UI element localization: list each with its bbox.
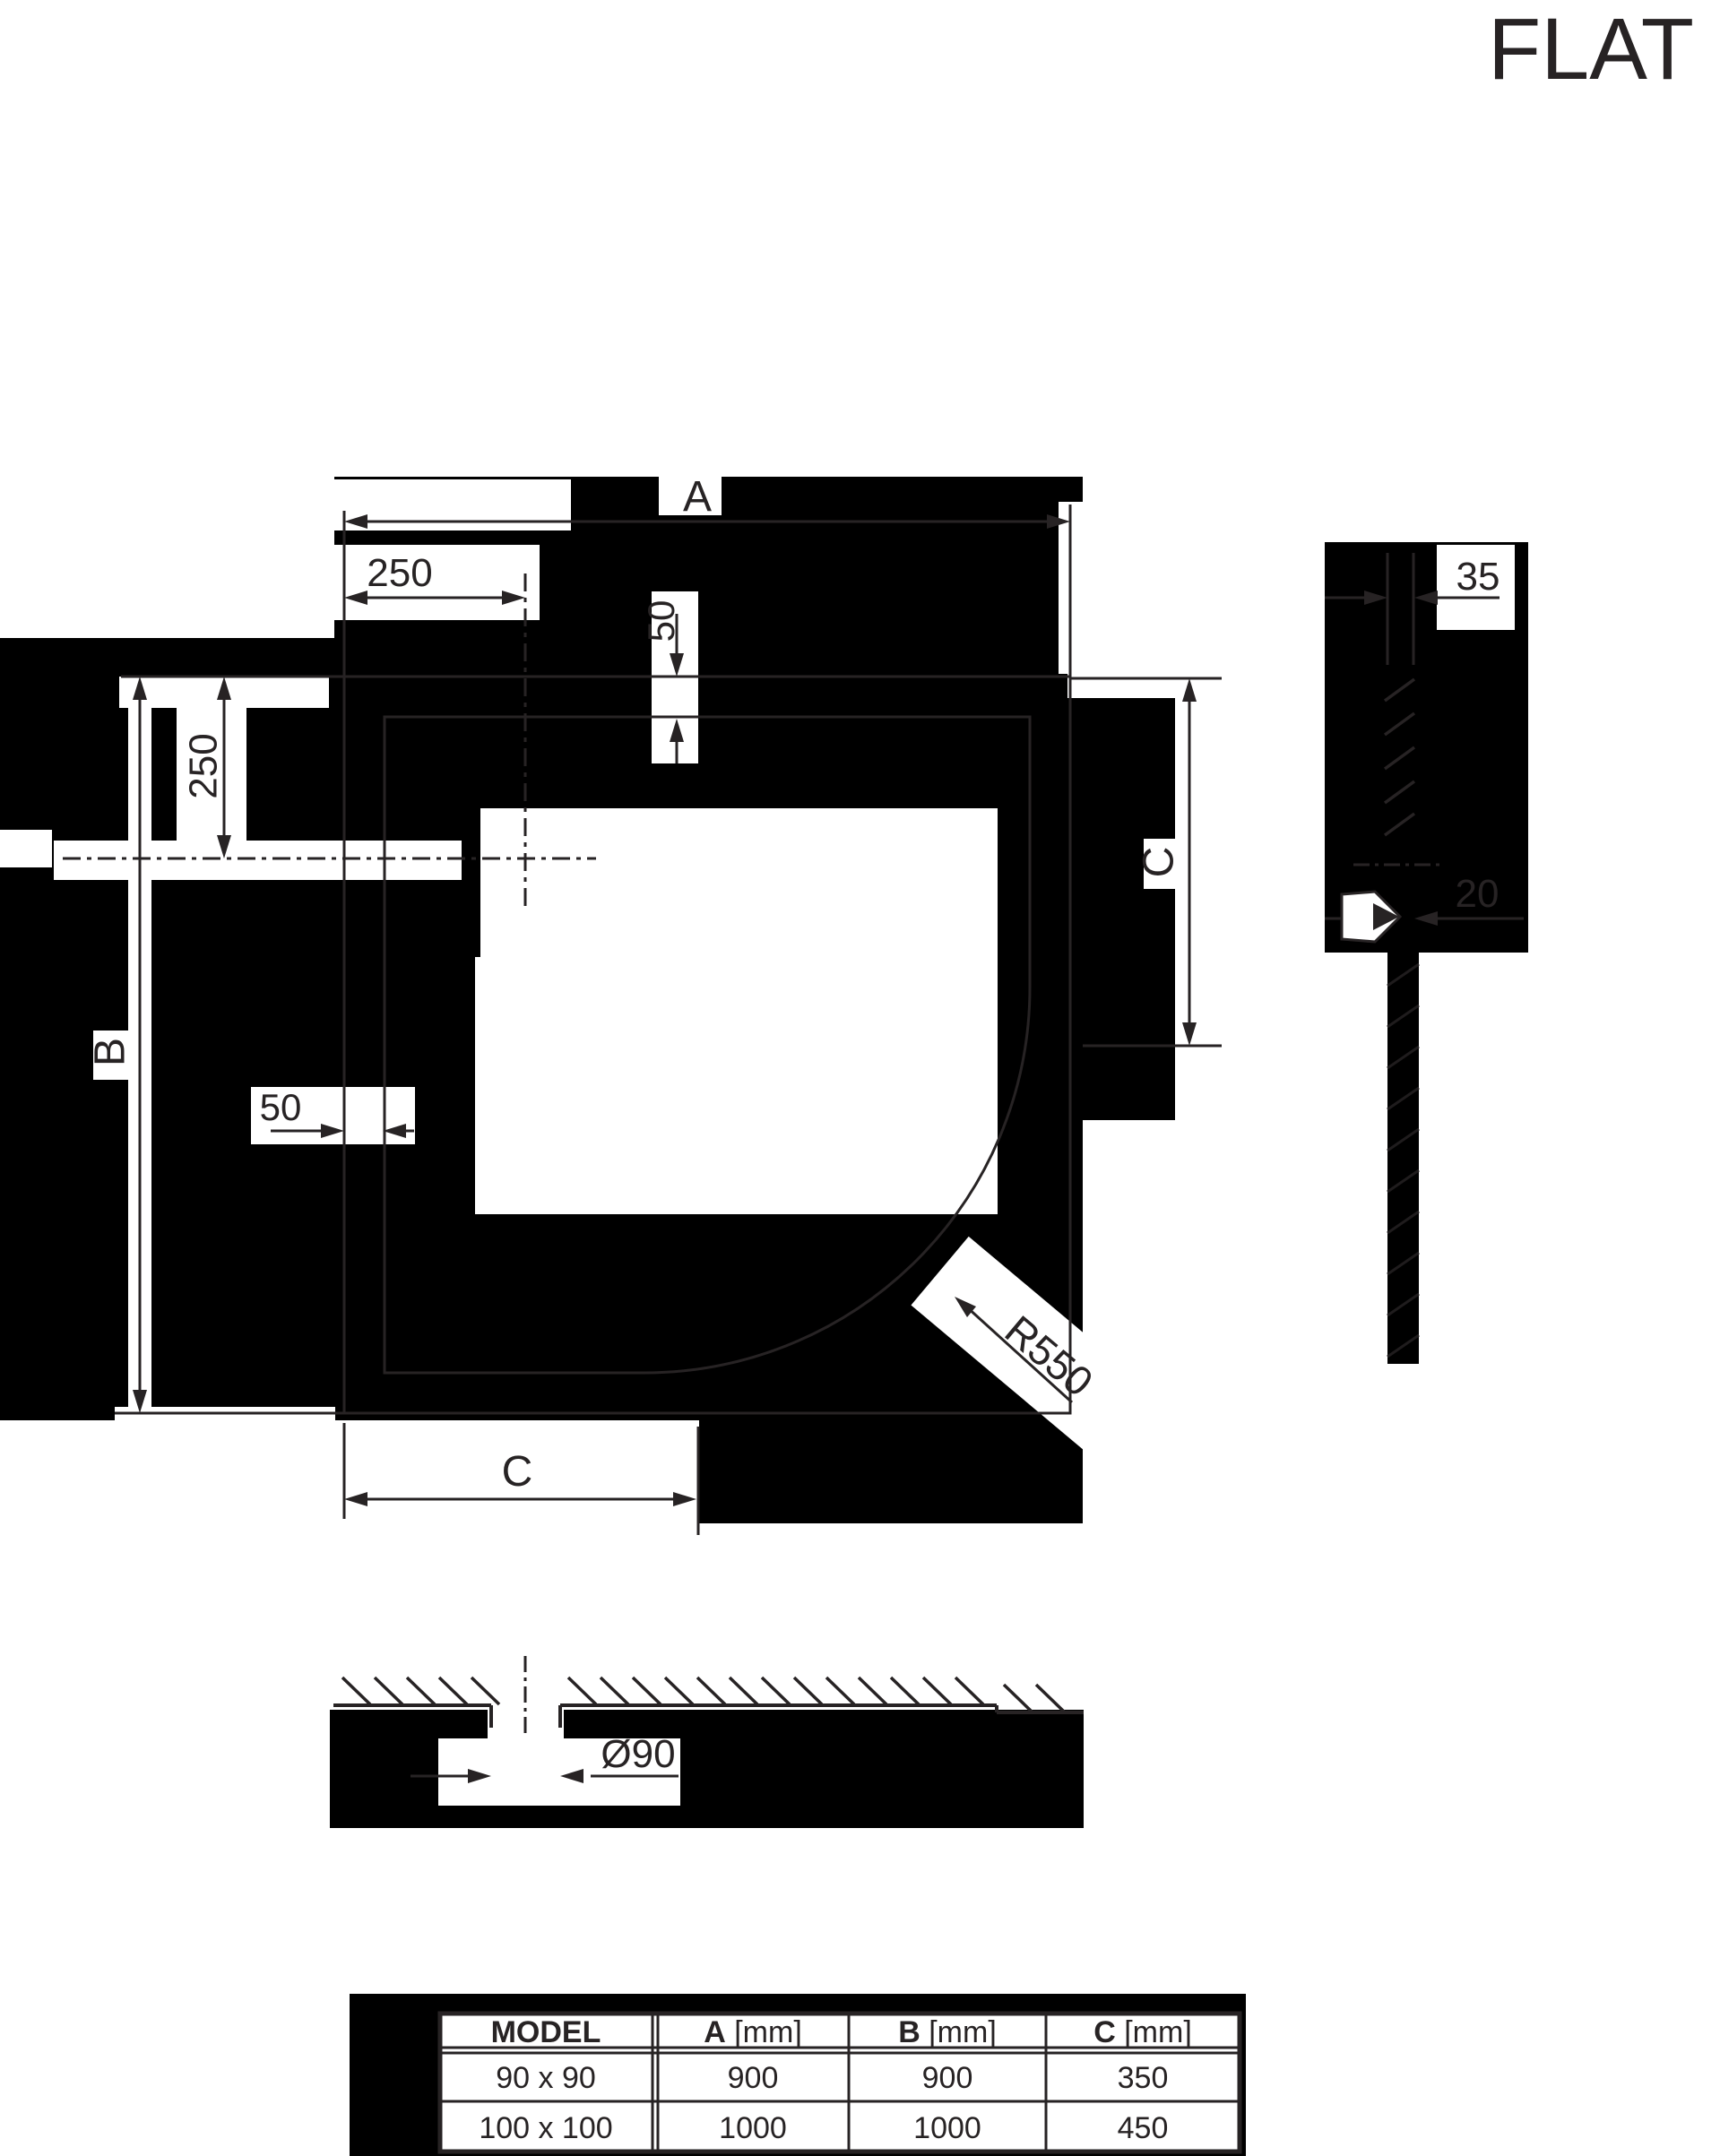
dim-label-35: 35 (1456, 555, 1500, 599)
dim-label-C-right: C (1136, 847, 1183, 878)
dim-label-C-bottom: C (502, 1448, 533, 1496)
table-cell-b-1: 900 (922, 2061, 973, 2095)
spec-table: MODEL A [mm] B [mm] C [mm] 90 x 90 900 9… (440, 2014, 1240, 2152)
table-header-model: MODEL (491, 2015, 601, 2049)
dim-label-drain-diameter: Ø90 (601, 1732, 675, 1776)
table-cell-a-2: 1000 (719, 2111, 787, 2145)
dim-label-250-horizontal: 250 (367, 551, 432, 595)
table-cell-model-2: 100 x 100 (479, 2111, 612, 2145)
drain-pipe-section (1387, 953, 1419, 1364)
table-header-c: C [mm] (1093, 2015, 1192, 2049)
table-cell-model-1: 90 x 90 (496, 2061, 596, 2095)
dim-label-20: 20 (1456, 872, 1500, 916)
dim-label-A: A (683, 473, 712, 521)
dim-label-250-vertical: 250 (182, 733, 226, 798)
table-cell-a-1: 900 (728, 2061, 779, 2095)
flat-tray-drawing: A 250 50 250 B 50 C R550 C 35 20 Ø90 FLA… (0, 0, 1720, 2156)
brand-logo: FLAT (1488, 0, 1694, 98)
dim-label-B: B (87, 1038, 134, 1066)
table-header-b: B [mm] (898, 2015, 997, 2049)
dim-label-50-top: 50 (640, 600, 682, 642)
technical-drawing-page: A 250 50 250 B 50 C R550 C 35 20 Ø90 FLA… (0, 0, 1720, 2156)
table-cell-b-2: 1000 (913, 2111, 981, 2145)
table-cell-c-2: 450 (1118, 2111, 1169, 2145)
table-header-a: A [mm] (704, 2015, 802, 2049)
dim-label-50-left: 50 (260, 1086, 302, 1128)
table-cell-c-1: 350 (1118, 2061, 1169, 2095)
